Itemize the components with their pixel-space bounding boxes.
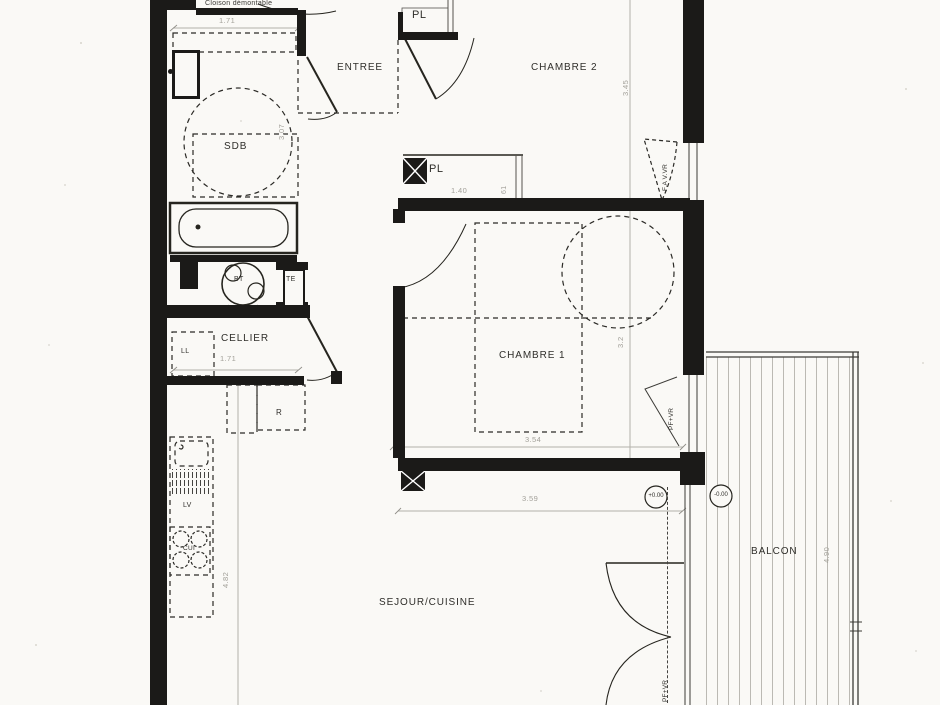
wall-cellier-door-jamb: [331, 371, 342, 384]
elevation-balcony: -0.00: [710, 492, 732, 498]
window-label-chambre2: F.A V.VR: [662, 164, 669, 191]
duct-knob: [168, 69, 173, 74]
dim-pl-width: 1.40: [451, 186, 467, 195]
chambre2-door-leaf: [403, 35, 436, 99]
chambre2-window: [689, 143, 697, 200]
equipment-label-cui: CUI: [183, 545, 195, 552]
room-label-sdb: SDB: [224, 141, 247, 152]
equipment-label-bt: BT: [234, 276, 244, 283]
dim-chambre2-height: 3.45: [621, 80, 630, 96]
wall-chambre1-bottom: [398, 458, 680, 471]
chambre2-door-arc: [436, 38, 474, 99]
sejour-bay-marker: [667, 487, 668, 703]
chambre1-window: [689, 375, 697, 452]
chambre1-turning-circle: [562, 216, 674, 328]
dim-sdb-height: 3.07: [277, 124, 286, 140]
dim-pl-depth: 61: [501, 185, 508, 194]
wall-chambre1-left-upper: [393, 209, 405, 223]
wall-left-exterior: [150, 0, 167, 705]
dim-cuisine-height: 4.82: [221, 572, 230, 588]
wall-under-tub: [170, 255, 297, 262]
equipment-label-lv: LV: [183, 502, 192, 509]
cloison-demontable-label: Cloison démontable: [205, 0, 272, 7]
wall-sdb-right: [297, 10, 306, 56]
dim-chambre1-height: 3.2: [616, 336, 625, 348]
wall-right-exterior-2: [683, 200, 704, 375]
elevation-interior: +0.00: [645, 493, 667, 499]
closet-label-pl-chambre: PL: [429, 163, 443, 175]
sink-outline: [175, 441, 208, 466]
closet-label-pl-entree: PL: [412, 9, 426, 21]
dim-balcon-height: 4.90: [822, 547, 831, 563]
wall-chambre1-left-lower: [393, 286, 405, 458]
cellier-door-leaf: [306, 314, 337, 372]
wall-right-exterior-1: [683, 0, 704, 143]
equipment-label-r: R: [276, 408, 282, 417]
sejour-glazing: [685, 485, 690, 705]
wall-cloison-demontable: [196, 8, 298, 15]
wall-bt-stub: [180, 262, 198, 289]
railing-joint: [850, 622, 862, 631]
wall-top-stub: [167, 0, 196, 10]
wall-pl-entree-left: [398, 12, 403, 34]
room-label-entree: ENTREE: [337, 62, 383, 73]
wall-chambre-divider: [398, 198, 690, 211]
bed-outline: [475, 223, 582, 432]
dim-sejour-width: 3.59: [522, 494, 538, 503]
chambre2-window-swing: [644, 139, 677, 200]
sdb-duct-box: [172, 50, 200, 99]
room-label-chambre1: CHAMBRE 1: [499, 350, 565, 361]
windows-and-railing: [645, 143, 862, 705]
kitchen-hatch-block: [172, 469, 209, 494]
chambre1-door-arc: [399, 224, 466, 288]
floor-plan: Cloison démontable 1.71 SDB 3.07 ENTREE …: [0, 0, 940, 705]
balcony-railing: [706, 352, 859, 705]
wall-pl-entree-bottom: [398, 32, 458, 40]
window-label-chambre1: PF+VR: [668, 408, 675, 430]
room-label-sejour: SEJOUR/CUISINE: [379, 597, 476, 608]
room-label-chambre2: CHAMBRE 2: [531, 62, 597, 73]
equipment-label-te: TE: [286, 276, 296, 283]
te-box: [283, 269, 305, 307]
window-label-sejour: PF+VR: [662, 680, 669, 702]
sdb-door-leaf: [307, 57, 337, 112]
tub-drain: [196, 225, 201, 230]
sdb-door-arc: [308, 112, 337, 119]
dim-sdb-width: 1.71: [219, 16, 235, 25]
dim-chambre1-width: 3.54: [525, 435, 541, 444]
wall-cellier-bottom: [167, 376, 304, 385]
wall-right-exterior-3: [680, 452, 705, 485]
room-label-balcon: BALCON: [751, 546, 798, 557]
room-label-cellier: CELLIER: [221, 333, 269, 344]
washer-outline: [172, 332, 214, 376]
equipment-label-ll: LL: [181, 348, 189, 355]
dim-cellier-width: 1.71: [220, 354, 236, 363]
